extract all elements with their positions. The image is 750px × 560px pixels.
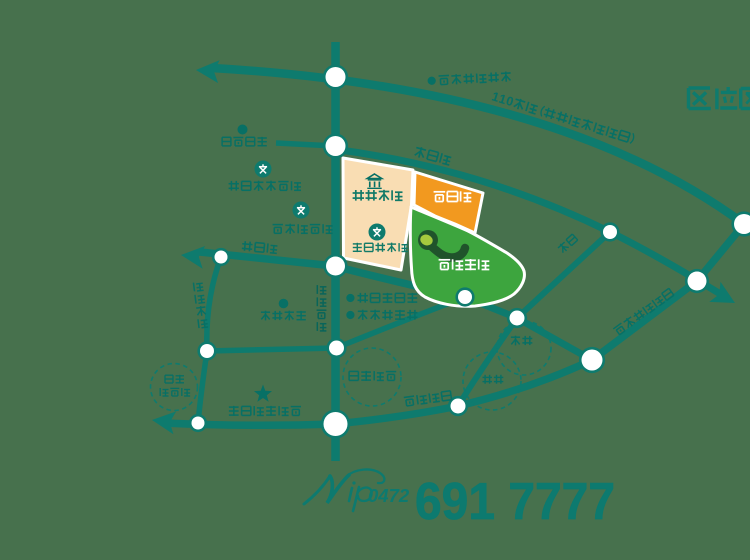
svg-text:0472: 0472 bbox=[368, 485, 410, 506]
svg-text:691 7777: 691 7777 bbox=[415, 473, 615, 531]
